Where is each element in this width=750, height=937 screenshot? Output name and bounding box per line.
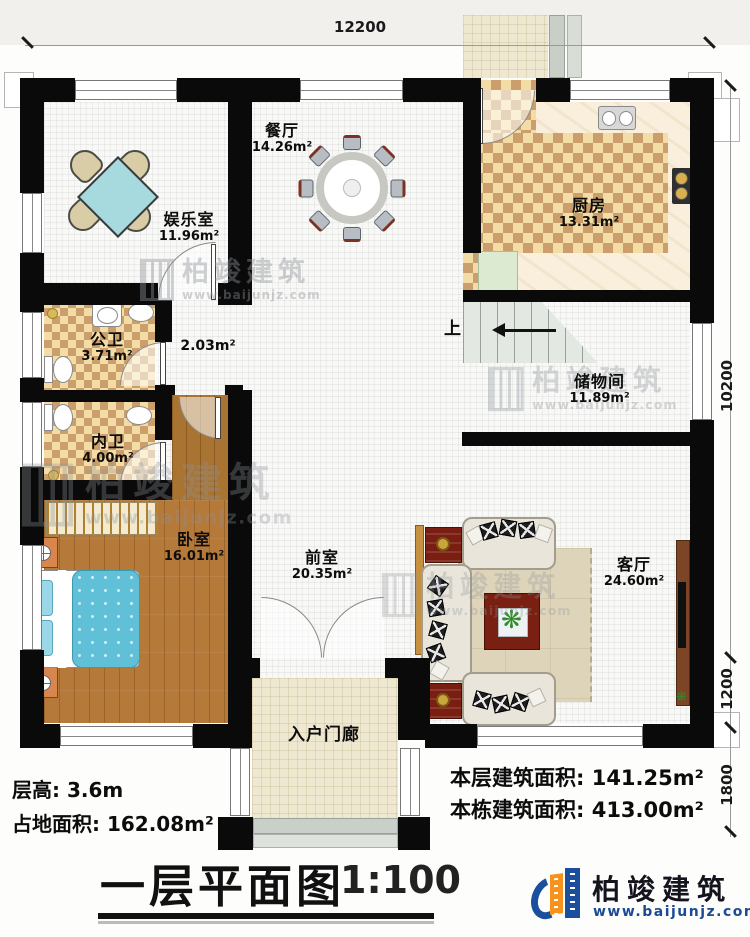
kitchen-cabinet [478,251,518,291]
dining-chair [343,227,361,242]
bed-duvet [72,570,140,668]
room-name: 餐厅 [236,121,328,140]
room-name: 前室 [276,548,368,567]
logo-building-blue-icon [565,868,580,918]
wall-segment [252,658,260,678]
stove-burner [675,187,688,200]
wall-segment [462,432,714,446]
wall-segment [463,102,481,253]
brand-building-icon [382,573,418,617]
sheet-title: 一层平面图 [100,850,345,915]
porch-step [253,834,398,848]
wall-segment [385,658,398,678]
room-area: 4.00m² [63,451,153,466]
brand-name: 柏竣建筑 [592,868,732,908]
room-name: 客厅 [588,555,680,574]
stairs-up-text: 上 [440,320,466,339]
wall-segment [177,78,300,102]
window [22,193,42,253]
window [477,726,643,746]
footer-land-area: 占地面积: 162.08m² [12,808,214,840]
wash-basin [128,303,154,322]
wall-segment [20,283,158,305]
toilet-bowl [97,307,118,324]
wall-segment [403,78,481,102]
wall-segment [20,390,172,402]
mat-medallion [436,693,450,707]
logo-building-orange-icon [550,873,563,915]
room-area: 11.96m² [143,229,235,244]
plant-icon: ❋ [676,690,687,705]
watermark-url: www.baijunjz.com [182,288,321,302]
toilet [92,302,122,327]
accent-mat [425,683,462,719]
wall-segment [155,300,172,342]
watermark-name: 柏竣建筑 [182,258,321,288]
room-label-entertainment: 娱乐室 11.96m² [143,210,235,244]
floor-entry-porch [252,678,398,818]
room-name: 入户门廊 [272,726,376,745]
room-area: 13.31m² [544,215,634,230]
toilet-tank [44,404,53,431]
room-name: 厨房 [544,196,634,215]
room-area: 2.03m² [168,339,248,354]
wall-segment [463,290,714,302]
back-porch-step [549,15,565,78]
toilet-tank [44,356,53,383]
window [22,402,42,467]
dimension-top: 12200 [325,18,395,36]
room-area: 14.26m² [236,140,328,155]
dining-chair [299,180,314,198]
dining-chair [343,135,361,150]
porch-step [253,818,398,834]
wall-segment [425,724,477,748]
brand-building-icon [488,367,524,411]
room-name: 娱乐室 [143,210,235,229]
watermark: 柏竣建筑 www.baijunjz.com [22,462,293,528]
kitchen-tile-rug [463,133,668,253]
room-name: 储物间 [552,372,647,391]
watermark: 柏竣建筑 www.baijunjz.com [140,258,321,302]
wall-segment [398,658,430,740]
room-label-hallway: 2.03m² [168,339,248,354]
dining-table-center [343,179,361,197]
watermark-url: www.baijunjz.com [85,507,293,528]
dimension-right-lower: 1800 [718,755,736,815]
sink-basin [619,111,633,126]
dimension-right-mid: 1200 [718,659,736,719]
window [22,545,42,650]
room-area: 11.89m² [552,391,647,406]
mat-medallion [436,537,450,551]
stairs-up-label: 上 [440,320,466,339]
stairs-arrow-head [492,323,505,337]
door-leaf [215,397,221,439]
room-label-kitchen: 厨房 13.31m² [544,196,634,230]
porch-rail [230,748,250,816]
title-underline-shadow [98,921,434,924]
room-name: 公卫 [62,330,152,349]
window [75,80,177,100]
back-porch-step [567,15,582,78]
sheet-scale: 1:100 [340,858,461,902]
room-label-storage: 储物间 11.89m² [552,372,647,406]
room-label-private-bath: 内卫 4.00m² [63,432,153,466]
kitchen-sink [598,106,636,130]
window [300,80,403,100]
floor-drain [47,308,58,319]
room-label-dining: 餐厅 14.26m² [236,121,328,155]
room-name: 卧室 [148,530,240,549]
brand-building-icon [140,259,174,301]
room-area: 3.71m² [62,349,152,364]
corner-pad [712,98,740,142]
room-label-public-bath: 公卫 3.71m² [62,330,152,364]
porch-rail [400,748,420,816]
room-label-bedroom: 卧室 16.01m² [148,530,240,564]
wall-segment [20,78,44,193]
wall-segment [690,420,714,748]
dining-chair [391,180,406,198]
footer-total-build-area: 本栋建筑面积: 413.00m² [450,794,704,826]
wall-segment [643,724,714,748]
window [60,726,193,746]
window [22,312,42,378]
stairs-direction-line [504,329,556,332]
brand-url: www.baijunjz.com [593,904,750,920]
room-area: 16.01m² [148,549,240,564]
dining-table-set [316,152,388,224]
window [570,80,670,100]
watermark: 柏竣建筑 www.baijunjz.com [382,572,572,618]
room-label-front-room: 前室 20.35m² [276,548,368,582]
wall-segment [20,724,60,748]
room-name: 内卫 [63,432,153,451]
sofa-pillow [499,519,518,538]
title-underline [98,913,434,919]
tv-screen [678,582,686,648]
wall-segment [536,78,570,102]
accent-mat [425,527,462,563]
toilet-bowl [53,404,73,431]
wall-segment [690,78,714,323]
sofa-pillow [492,695,511,714]
window [692,323,712,420]
dimension-line-top [25,45,713,46]
door-leaf [160,342,166,385]
floor-back-porch [463,15,548,78]
footer-floor-height: 层高: 3.6m [12,774,123,806]
porch-pillar [218,817,253,850]
wash-basin [126,406,152,425]
floor-plan-canvas: ❋ ❋ [0,0,750,937]
stove-burner [675,172,688,185]
watermark-name: 柏竣建筑 [85,462,293,507]
watermark-name: 柏竣建筑 [426,572,572,604]
room-area: 20.35m² [276,567,368,582]
footer-floor-build-area: 本层建筑面积: 141.25m² [450,762,704,794]
porch-pillar [398,817,430,850]
wall-segment [228,658,252,745]
room-label-porch: 入户门廊 [272,726,376,745]
brand-building-icon [22,464,73,527]
sink-basin [602,111,616,126]
watermark-url: www.baijunjz.com [426,604,572,619]
brand-logo: 柏竣建筑 www.baijunjz.com [532,864,732,928]
room-area: 24.60m² [588,574,680,589]
dimension-right-upper: 10200 [718,356,736,416]
room-label-living: 客厅 24.60m² [588,555,680,589]
stove [672,168,692,204]
wall-segment [163,385,175,395]
